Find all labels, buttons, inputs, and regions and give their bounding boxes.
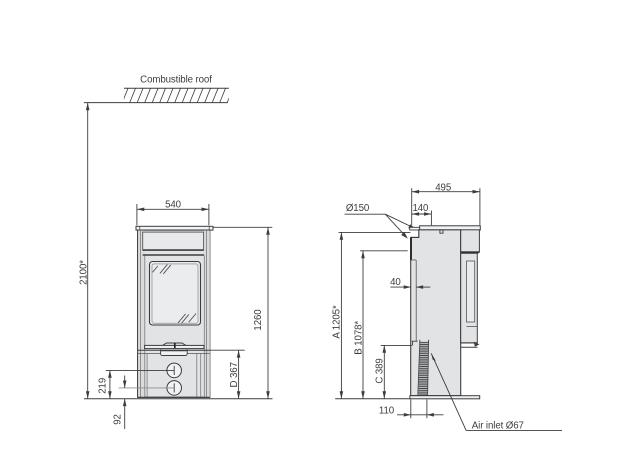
svg-text:A 1205*: A 1205* — [332, 305, 343, 339]
svg-text:140: 140 — [412, 203, 429, 214]
svg-text:C 389: C 389 — [375, 358, 386, 383]
svg-text:2100*: 2100* — [78, 260, 89, 285]
svg-text:92: 92 — [112, 414, 123, 425]
svg-text:219: 219 — [98, 378, 109, 394]
svg-text:Combustible roof: Combustible roof — [140, 75, 212, 86]
svg-text:B 1078*: B 1078* — [353, 321, 364, 355]
svg-text:Air inlet Ø67: Air inlet Ø67 — [472, 420, 524, 431]
svg-text:40: 40 — [390, 277, 401, 288]
svg-text:495: 495 — [435, 183, 451, 194]
svg-text:110: 110 — [379, 405, 395, 416]
svg-text:540: 540 — [165, 199, 182, 210]
svg-text:1260: 1260 — [253, 309, 264, 331]
svg-text:D 367: D 367 — [229, 362, 240, 387]
svg-text:Ø150: Ø150 — [346, 203, 370, 214]
